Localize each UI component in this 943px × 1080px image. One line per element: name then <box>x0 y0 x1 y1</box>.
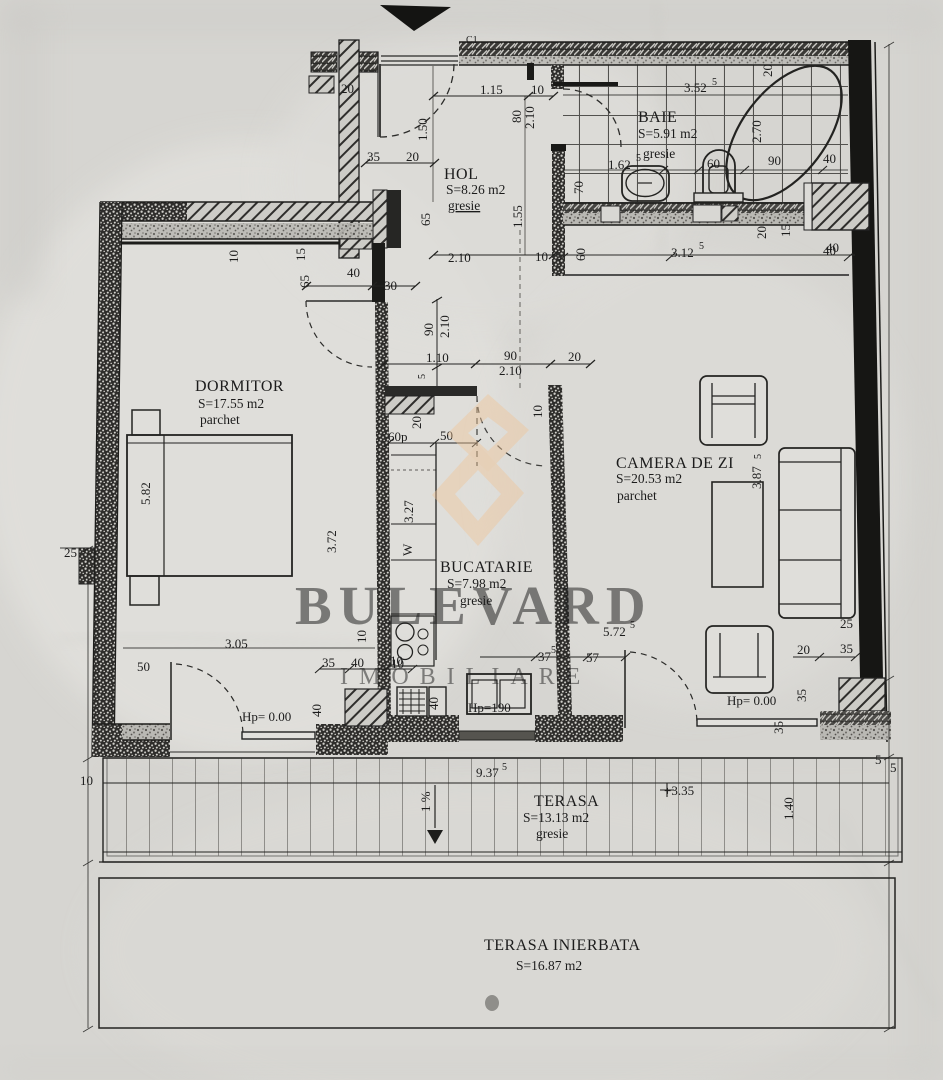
svg-text:S=8.26 m2: S=8.26 m2 <box>446 182 505 197</box>
svg-text:10: 10 <box>530 405 545 418</box>
svg-text:65: 65 <box>418 213 433 226</box>
svg-text:S=17.55 m2: S=17.55 m2 <box>198 396 264 411</box>
svg-text:40: 40 <box>823 243 836 258</box>
svg-text:5: 5 <box>417 374 428 379</box>
svg-text:IMOBILIARE: IMOBILIARE <box>340 664 591 690</box>
svg-text:5: 5 <box>712 77 717 88</box>
svg-text:5: 5 <box>875 752 882 767</box>
svg-text:W: W <box>400 543 415 556</box>
svg-text:10: 10 <box>535 249 548 264</box>
svg-text:C1: C1 <box>466 35 478 46</box>
svg-text:90: 90 <box>421 323 436 336</box>
svg-text:5.82: 5.82 <box>138 482 153 505</box>
svg-text:CAMERA DE ZI: CAMERA DE ZI <box>616 455 734 472</box>
svg-text:25: 25 <box>64 545 77 560</box>
svg-text:35: 35 <box>794 689 809 702</box>
svg-text:10: 10 <box>226 250 241 263</box>
svg-text:1 %: 1 % <box>418 791 433 812</box>
svg-text:1.15: 1.15 <box>480 82 503 97</box>
svg-text:15: 15 <box>778 224 793 237</box>
svg-text:5: 5 <box>502 762 507 773</box>
svg-text:60: 60 <box>707 156 720 171</box>
svg-text:2.10: 2.10 <box>448 250 471 265</box>
svg-text:60p: 60p <box>388 429 408 444</box>
svg-text:20: 20 <box>754 226 769 239</box>
svg-text:gresie: gresie <box>643 146 675 161</box>
svg-text:35: 35 <box>367 149 380 164</box>
svg-text:Hp= 0.00: Hp= 0.00 <box>242 709 291 724</box>
svg-text:3.05: 3.05 <box>225 636 248 651</box>
svg-text:9.37: 9.37 <box>476 765 499 780</box>
svg-text:90: 90 <box>768 153 781 168</box>
svg-text:20: 20 <box>568 349 581 364</box>
svg-text:5: 5 <box>551 645 556 656</box>
svg-text:40: 40 <box>309 704 324 717</box>
svg-text:HOL: HOL <box>444 166 478 183</box>
svg-text:2.10: 2.10 <box>437 315 452 338</box>
svg-text:TERASA: TERASA <box>534 793 599 810</box>
svg-text:25: 25 <box>840 616 853 631</box>
svg-text:20: 20 <box>760 64 775 77</box>
svg-text:70: 70 <box>571 181 586 194</box>
svg-text:35: 35 <box>322 655 335 670</box>
svg-text:DORMITOR: DORMITOR <box>195 378 284 395</box>
svg-text:Hp= 0.00: Hp= 0.00 <box>727 693 776 708</box>
svg-text:2.10: 2.10 <box>499 363 522 378</box>
svg-text:S=20.53 m2: S=20.53 m2 <box>616 471 682 486</box>
svg-text:40: 40 <box>347 265 360 280</box>
svg-text:20: 20 <box>409 416 424 429</box>
svg-text:Hp=190: Hp=190 <box>468 700 511 715</box>
svg-text:35: 35 <box>771 721 786 734</box>
svg-text:gresie: gresie <box>448 198 480 213</box>
svg-text:1.10: 1.10 <box>426 350 449 365</box>
svg-text:1.62: 1.62 <box>608 157 631 172</box>
svg-text:BUCATARIE: BUCATARIE <box>440 559 533 576</box>
svg-text:50: 50 <box>137 659 150 674</box>
svg-text:5: 5 <box>890 760 897 775</box>
svg-text:3.72: 3.72 <box>324 530 339 553</box>
svg-text:TERASA INIERBATA: TERASA INIERBATA <box>484 937 641 954</box>
svg-text:BULEVARD: BULEVARD <box>295 575 653 636</box>
svg-text:1.55: 1.55 <box>510 205 525 228</box>
svg-text:10: 10 <box>531 82 544 97</box>
svg-text:10: 10 <box>80 773 93 788</box>
svg-text:parchet: parchet <box>200 412 240 427</box>
svg-text:20: 20 <box>341 81 354 96</box>
svg-text:S=13.13 m2: S=13.13 m2 <box>523 810 589 825</box>
svg-text:S=16.87 m2: S=16.87 m2 <box>516 958 582 973</box>
svg-text:3.87: 3.87 <box>749 466 764 489</box>
svg-text:5: 5 <box>699 241 704 252</box>
svg-text:15: 15 <box>293 248 308 261</box>
svg-text:3.12: 3.12 <box>671 245 694 260</box>
svg-text:2.10: 2.10 <box>522 106 537 129</box>
svg-text:gresie: gresie <box>536 826 568 841</box>
svg-text:1.40: 1.40 <box>781 797 796 820</box>
svg-text:5: 5 <box>636 153 641 164</box>
svg-text:parchet: parchet <box>617 488 657 503</box>
svg-text:60: 60 <box>573 248 588 261</box>
svg-text:S=5.91 m2: S=5.91 m2 <box>638 126 697 141</box>
svg-text:2.70: 2.70 <box>749 120 764 143</box>
svg-text:30: 30 <box>384 278 397 293</box>
svg-text:35: 35 <box>840 641 853 656</box>
svg-text:40: 40 <box>823 151 836 166</box>
svg-text:3.52: 3.52 <box>684 80 707 95</box>
svg-text:20: 20 <box>406 149 419 164</box>
svg-text:40: 40 <box>426 697 441 710</box>
svg-text:1.50: 1.50 <box>415 118 430 141</box>
svg-text:5: 5 <box>753 454 764 459</box>
svg-text:90: 90 <box>504 348 517 363</box>
svg-text:BAIE: BAIE <box>638 109 677 126</box>
svg-text:20: 20 <box>797 642 810 657</box>
svg-text:3.27: 3.27 <box>401 500 416 523</box>
